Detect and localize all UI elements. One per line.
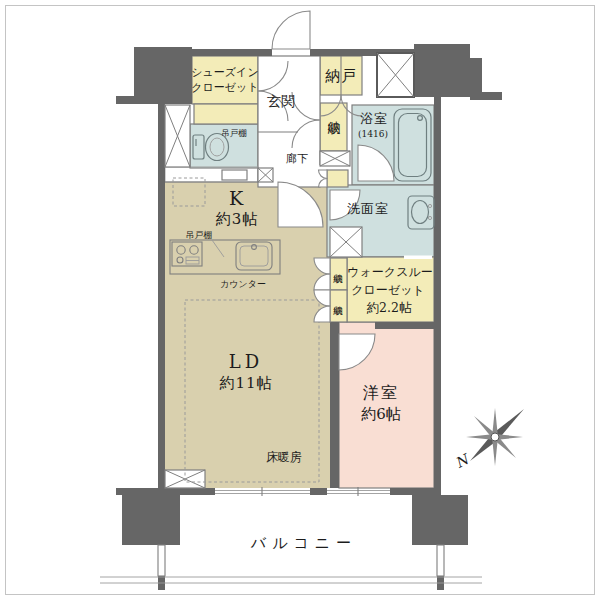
kitchen-cupboard-label: 吊戸棚 — [186, 230, 213, 240]
wall-right — [434, 97, 441, 495]
ps-box-corridor-small — [258, 168, 273, 182]
wtc-washroom-opening — [404, 256, 432, 260]
washing-machine-box — [330, 227, 362, 257]
counter-label: カウンター — [220, 279, 266, 289]
walkthrough-label-1: ウォークスルー — [347, 265, 432, 279]
compass: N — [452, 408, 524, 471]
closet-upper-floor — [330, 258, 347, 290]
pillar-bottom-right — [412, 495, 468, 545]
hall-closet-floor — [320, 103, 347, 151]
wall-bottom-b — [310, 488, 327, 495]
western-room-label: 洋室 — [363, 383, 399, 402]
ps-box-left — [165, 105, 190, 167]
wall-bottom-a — [116, 488, 215, 495]
toilet-cupboard-label: 吊戸棚 — [221, 128, 247, 138]
wall-ld-bedroom-divider — [330, 322, 339, 488]
entrance-door-arc — [272, 11, 310, 49]
wall-bedroom-top — [375, 322, 441, 329]
floorplan-page: N シューズイン クローゼット 玄関 納戸 収納 浴室 (1416) 吊戸棚 廊… — [0, 0, 600, 600]
ps-box-top — [377, 53, 414, 97]
alcove-shelf — [222, 170, 247, 180]
floorplan-svg: N シューズイン クローゼット 玄関 納戸 収納 浴室 (1416) 吊戸棚 廊… — [0, 0, 600, 600]
walkthrough-label-2: クローゼット — [351, 283, 424, 297]
shoes-closet-floor — [192, 56, 258, 104]
walkthrough-label-3: 約2.2帖 — [367, 300, 412, 315]
pillar-top-right — [414, 44, 470, 97]
western-room-size-label: 約6帖 — [361, 405, 401, 423]
closet-lower-floor — [330, 290, 347, 322]
floor-heating-label: 床暖房 — [266, 450, 302, 464]
ps-box-corridor-east — [320, 151, 350, 166]
wall-strip-top-right — [470, 92, 502, 100]
shoes-closet-label-1: シューズイン — [191, 66, 258, 79]
pillar-bottom-left — [122, 495, 180, 545]
wall-left — [158, 104, 165, 495]
living-dining-size-label: 約11帖 — [219, 374, 272, 392]
balcony-partition-left — [158, 545, 165, 576]
bathroom-size-label: (1416) — [358, 129, 388, 139]
wall-top-a — [190, 49, 272, 56]
window-ld — [215, 487, 310, 496]
washroom-label: 洗面室 — [347, 201, 389, 216]
shoes-closet-shelf — [194, 104, 258, 124]
entrance-label: 玄関 — [267, 93, 295, 109]
balcony-partition-right — [437, 545, 444, 576]
living-dining-label: LD — [229, 351, 263, 372]
bathroom-label: 浴室 — [360, 111, 388, 126]
corridor-label: 廊下 — [286, 152, 308, 165]
wall-bottom-c — [390, 488, 441, 495]
kitchen-label: K — [229, 187, 244, 209]
north-star-center — [491, 433, 499, 441]
kitchen-size-label: 約3帖 — [216, 210, 259, 228]
balcony-label: バルコニー — [250, 534, 357, 552]
pillar-top-left — [134, 47, 192, 104]
shoes-closet-label-2: クローゼット — [191, 81, 258, 94]
compass-north-label: N — [452, 450, 473, 471]
corridor-mini-closet — [327, 170, 348, 187]
storeroom-label: 納戸 — [325, 67, 357, 85]
wall-strip-top-left — [116, 96, 134, 104]
